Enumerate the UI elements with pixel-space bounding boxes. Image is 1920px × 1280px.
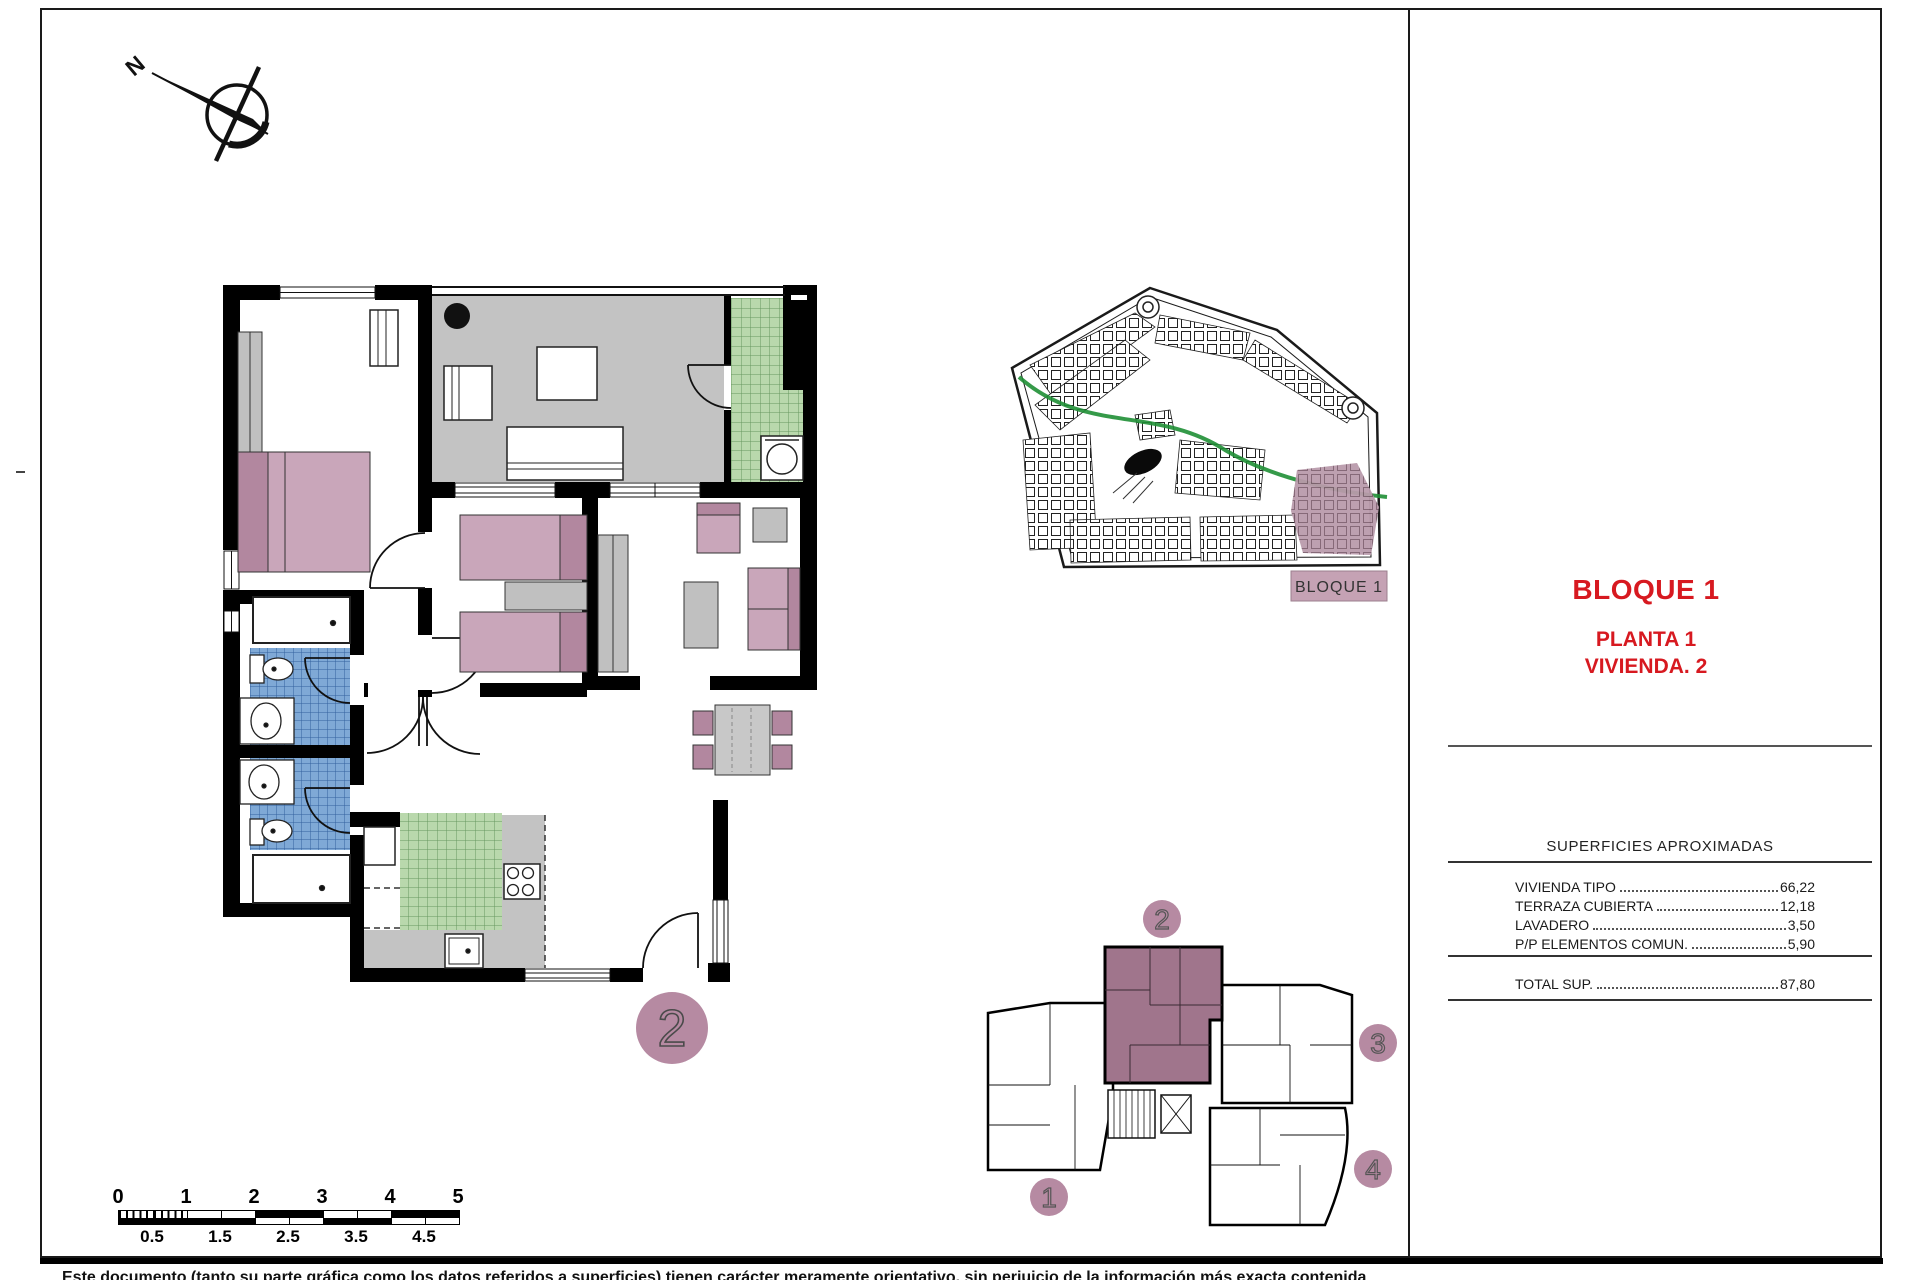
scale-bar-strip	[118, 1210, 460, 1225]
armchair-back	[697, 503, 740, 515]
washing-machine	[761, 436, 803, 480]
toilet-2	[262, 820, 292, 842]
side-table	[753, 508, 787, 542]
door-entry	[643, 913, 698, 968]
total-label: TOTAL SUP.	[1515, 976, 1593, 992]
scale-minor-tick: 3.5	[344, 1227, 368, 1247]
row-label: TERRAZA CUBIERTA	[1515, 898, 1653, 914]
scale-major-tick: 0	[112, 1186, 123, 1209]
scale-major-tick: 3	[316, 1186, 327, 1209]
key-unit-2: 2	[1154, 904, 1170, 935]
scale-minor-tick: 1.5	[208, 1227, 232, 1247]
dot-leader	[1657, 909, 1778, 911]
row-value: 5,90	[1788, 936, 1815, 952]
surfaces-separator	[1448, 955, 1872, 957]
key-apartment-4	[1210, 1108, 1348, 1225]
row-label: VIVIENDA TIPO	[1515, 879, 1616, 895]
shower-1	[253, 597, 350, 643]
surfaces-end-rule	[1448, 999, 1872, 1001]
floor-plan: 2	[200, 270, 840, 1070]
unit-number: 2	[658, 1000, 687, 1058]
furniture-bedroom1	[238, 310, 398, 572]
furniture-living	[598, 503, 800, 672]
unit-label: VIVIENDA. 2	[1408, 655, 1884, 679]
dot-leader	[1692, 947, 1786, 949]
toilet-1-tank	[250, 655, 264, 683]
scale-minor-tick: 2.5	[276, 1227, 300, 1247]
scale-major-tick: 5	[452, 1186, 463, 1209]
dining-table	[715, 705, 770, 775]
site-plan: BLOQUE 1	[985, 265, 1410, 610]
dining-chair	[772, 711, 792, 735]
surfaces-table: VIVIENDA TIPO 66,22 TERRAZA CUBIERTA 12,…	[1515, 876, 1815, 952]
scale-minor-tick: 4.5	[412, 1227, 436, 1247]
room-kitchen	[400, 813, 502, 930]
north-label: N	[120, 50, 149, 81]
key-unit-4: 4	[1365, 1154, 1381, 1185]
row-value: 3,50	[1788, 917, 1815, 933]
fridge	[364, 827, 395, 865]
armchair	[697, 515, 740, 553]
fold-mark	[16, 471, 25, 473]
key-plan: 1 2 3 4	[980, 895, 1420, 1240]
terrace-bench	[507, 427, 623, 480]
dining-chair	[693, 711, 713, 735]
row-value: 12,18	[1780, 898, 1815, 914]
panel-rule	[1448, 745, 1872, 747]
door-bedroom1	[370, 533, 425, 588]
toilet-1	[263, 658, 293, 680]
door-double-hall	[367, 697, 480, 754]
scale-major-tick: 1	[180, 1186, 191, 1209]
key-apartment-3	[1222, 985, 1352, 1103]
terrace-chair	[444, 366, 492, 420]
surfaces-total-row: TOTAL SUP. 87,80	[1515, 973, 1815, 992]
scale-bar: 0 1 2 3 4 5 0.5 1.5 2.5 3.5 4.5	[118, 1186, 462, 1250]
key-apartment-1	[988, 1003, 1113, 1170]
row-label: P/P ELEMENTOS COMUN.	[1515, 936, 1688, 952]
row-label: LAVADERO	[1515, 917, 1589, 933]
terrace-round-table	[444, 303, 470, 329]
desk	[370, 310, 398, 366]
dot-leader	[1593, 928, 1786, 930]
scale-major-tick: 2	[248, 1186, 259, 1209]
svg-text:BLOQUE 1: BLOQUE 1	[1295, 579, 1383, 596]
table-row: VIVIENDA TIPO 66,22	[1515, 876, 1815, 895]
dining-chair	[693, 745, 713, 769]
dot-leader	[1597, 987, 1778, 989]
table-row: P/P ELEMENTOS COMUN. 5,90	[1515, 933, 1815, 952]
site-highlight-label: BLOQUE 1	[1291, 571, 1387, 601]
table-row: TERRAZA CUBIERTA 12,18	[1515, 895, 1815, 914]
kitchen-sink	[445, 934, 483, 968]
nightstand	[505, 582, 587, 610]
furniture-bedroom2	[460, 515, 587, 672]
scale-major-tick: 4	[384, 1186, 395, 1209]
dot-leader	[1620, 890, 1778, 892]
floor-label: PLANTA 1	[1408, 628, 1884, 652]
bed-double-headboard	[238, 452, 268, 572]
unit-number-badge: 2	[636, 992, 708, 1064]
block-title: BLOQUE 1	[1408, 574, 1884, 606]
coffee-table	[684, 582, 718, 648]
disclaimer-text: Este documento (tanto su parte gráfica c…	[62, 1269, 1602, 1280]
north-arrow-icon: N	[85, 30, 275, 180]
table-row: LAVADERO 3,50	[1515, 914, 1815, 933]
shower-2	[253, 855, 350, 903]
surfaces-heading: SUPERFICIES APROXIMADAS	[1448, 838, 1872, 855]
plan-sheet: N	[0, 0, 1920, 1280]
key-unit-1: 1	[1041, 1182, 1057, 1213]
bed-double	[268, 452, 370, 572]
sofa-back	[788, 568, 800, 650]
key-unit-3: 3	[1370, 1028, 1386, 1059]
key-apartment-2-highlight	[1105, 947, 1222, 1083]
total-value: 87,80	[1780, 976, 1815, 992]
key-core	[1108, 1090, 1191, 1138]
dining-chair	[772, 745, 792, 769]
furniture-dining	[693, 705, 792, 775]
scale-minor-tick: 0.5	[140, 1227, 164, 1247]
row-value: 66,22	[1780, 879, 1815, 895]
surfaces-underline	[1448, 861, 1872, 863]
terrace-table	[537, 347, 597, 400]
bed-twin-2	[460, 612, 560, 672]
bottom-rule	[40, 1258, 1883, 1264]
bed-twin-1	[460, 515, 560, 580]
